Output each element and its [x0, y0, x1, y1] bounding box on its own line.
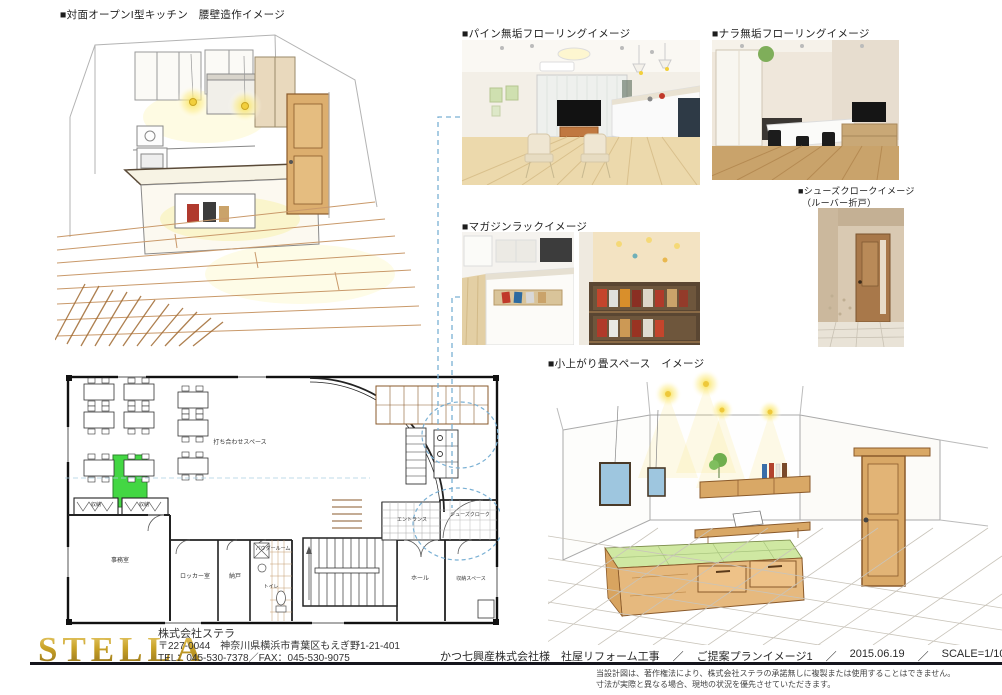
tatami-sketch [548, 368, 1002, 645]
room-label-storage-r: 収納 [129, 502, 159, 508]
oak-flooring-photo [712, 40, 899, 180]
separator: ／ [673, 648, 684, 664]
room-label-hall: ホール [398, 576, 442, 583]
presentation-board: ■対面オープンI型キッチン 腰壁造作イメージ ■パイン無垢フローリングイメージ … [0, 0, 1002, 695]
floor-plan-labels: 打ち合わせスペース 事務室 ロッカー室 納戸 パウダールーム トイレ 収納 収納… [60, 372, 500, 628]
room-label-shoes-cloak: シューズクローク [443, 512, 497, 518]
door-glass [880, 240, 886, 314]
room-label-meeting: 打ち合わせスペース [200, 440, 280, 447]
disclaimer: 当設計図は、著作権法により、株式会社ステラの承諾無しに複製または使用することはで… [596, 668, 955, 690]
wall-oven [540, 238, 572, 262]
room-label-storage-l: 収納 [81, 502, 111, 508]
scale: SCALE=1/100 [942, 648, 1002, 664]
tv [557, 100, 601, 126]
room-label-toilet: トイレ [256, 584, 286, 590]
separator: ／ [826, 648, 837, 664]
wood-floor [462, 274, 486, 345]
project-title: かつ七興産株式会社様 社屋リフォーム工事 [440, 648, 660, 664]
company-address: 〒227-0044 神奈川県横浜市青葉区もえぎ野1-21-401 [158, 641, 400, 653]
counter [486, 268, 574, 345]
room-label-nando: 納戸 [220, 574, 250, 581]
room-label-storage-space: 収納スペース [446, 576, 496, 582]
plan-name: ご提案プランイメージ1 [697, 648, 813, 664]
project-info: かつ七興産株式会社様 社屋リフォーム工事 ／ ご提案プランイメージ1 ／ 201… [440, 648, 1002, 664]
kitchen-sketch-label: ■対面オープンI型キッチン 腰壁造作イメージ [60, 7, 285, 22]
company-info: 株式会社ステラ 〒227-0044 神奈川県横浜市青葉区もえぎ野1-21-401… [158, 628, 400, 665]
pine-flooring-label: ■パイン無垢フローリングイメージ [462, 26, 630, 41]
pine-flooring-photo [462, 40, 700, 185]
disclaimer-line2: 寸法が実際と異なる場合、現地の状況を優先させていただきます。 [596, 679, 955, 690]
wood-rack [589, 282, 700, 345]
company-telfax: TEL：045-530-7378／FAX：045-530-9075 [158, 653, 400, 665]
wood-door [287, 92, 329, 218]
tv [852, 102, 886, 122]
window [464, 236, 492, 266]
date: 2015.06.19 [850, 648, 905, 664]
room-label-powder: パウダールーム [254, 546, 292, 552]
oak-floor [712, 146, 899, 180]
company-name: 株式会社ステラ [158, 628, 400, 640]
magazine-rack-photo-1 [462, 232, 574, 345]
room-label-locker: ロッカー室 [170, 574, 220, 581]
magazine-rack-photo-2 [579, 232, 700, 345]
room-label-office: 事務室 [90, 558, 150, 565]
kitchen-sketch [55, 22, 435, 347]
disclaimer-line1: 当設計図は、著作権法により、株式会社ステラの承諾無しに複製または使用することはで… [596, 668, 955, 679]
oak-flooring-label: ■ナラ無垢フローリングイメージ [712, 26, 870, 41]
plant [758, 46, 774, 62]
air-conditioner [540, 62, 574, 71]
separator: ／ [918, 648, 929, 664]
room-label-entrance: エントランス [387, 517, 437, 523]
shoes-closet-photo [818, 208, 904, 347]
